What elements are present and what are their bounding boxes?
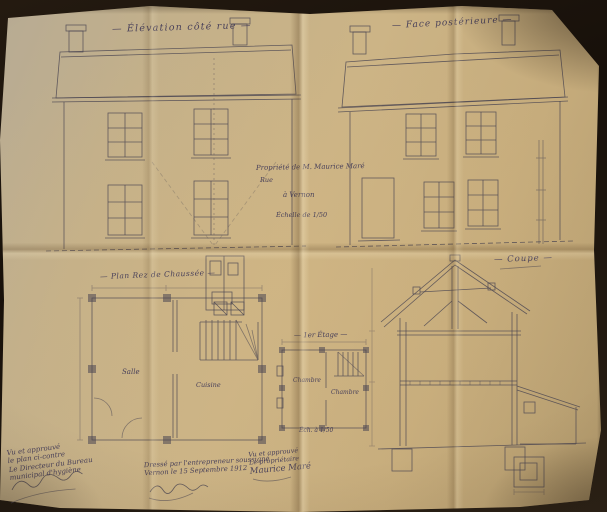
title-block-scale: Échelle de 1/50 [276,211,327,219]
room-label-cuisine: Cuisine [196,381,221,389]
annotation-hygiene-office: Vu et approuvé le plan ci-contre Le Dire… [6,439,94,483]
room-label-chambre-left: Chambre [293,377,321,384]
title-first-floor: — 1er Étage — [294,331,347,340]
title-street-elevation: — Élévation côté rue — [112,20,252,35]
photograph-of-architectural-plan: — Élévation côté rue — — Face postérieur… [0,0,607,512]
room-label-salle: Salle [122,368,140,376]
title-block-street: Rue [260,176,273,184]
annotation-owner: Vu et approuvé Le propriétaire Maurice M… [248,445,311,475]
title-rear-elevation: — Face postérieure — [392,15,513,31]
title-ground-plan: — Plan Rez de Chaussée — [100,268,216,281]
first-floor-scale-note: Éch. à 1/50 [299,427,333,434]
drawing-labels: — Élévation côté rue — — Face postérieur… [0,0,607,512]
title-block-property: Propriété de M. Maurice Maré [256,162,365,172]
title-block-city: à Vernon [283,191,315,199]
room-label-chambre-right: Chambre [331,389,359,396]
title-section: — Coupe — [494,253,553,265]
